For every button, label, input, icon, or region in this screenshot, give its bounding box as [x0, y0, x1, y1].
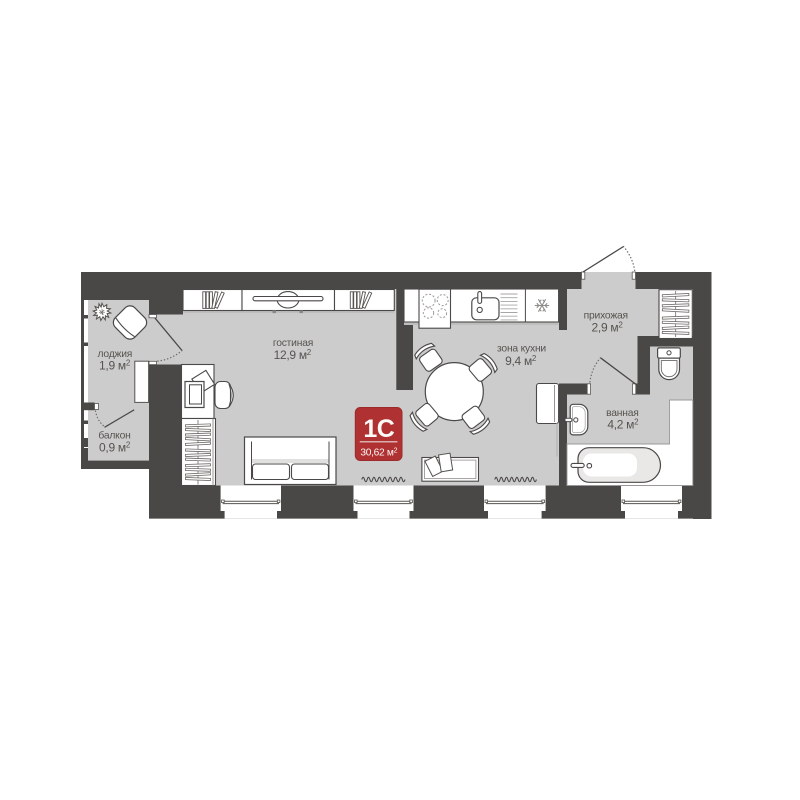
svg-text:12,9 м2: 12,9 м2: [274, 348, 312, 362]
svg-text:30,62 м2: 30,62 м2: [360, 448, 397, 459]
svg-text:1С: 1С: [363, 415, 394, 443]
